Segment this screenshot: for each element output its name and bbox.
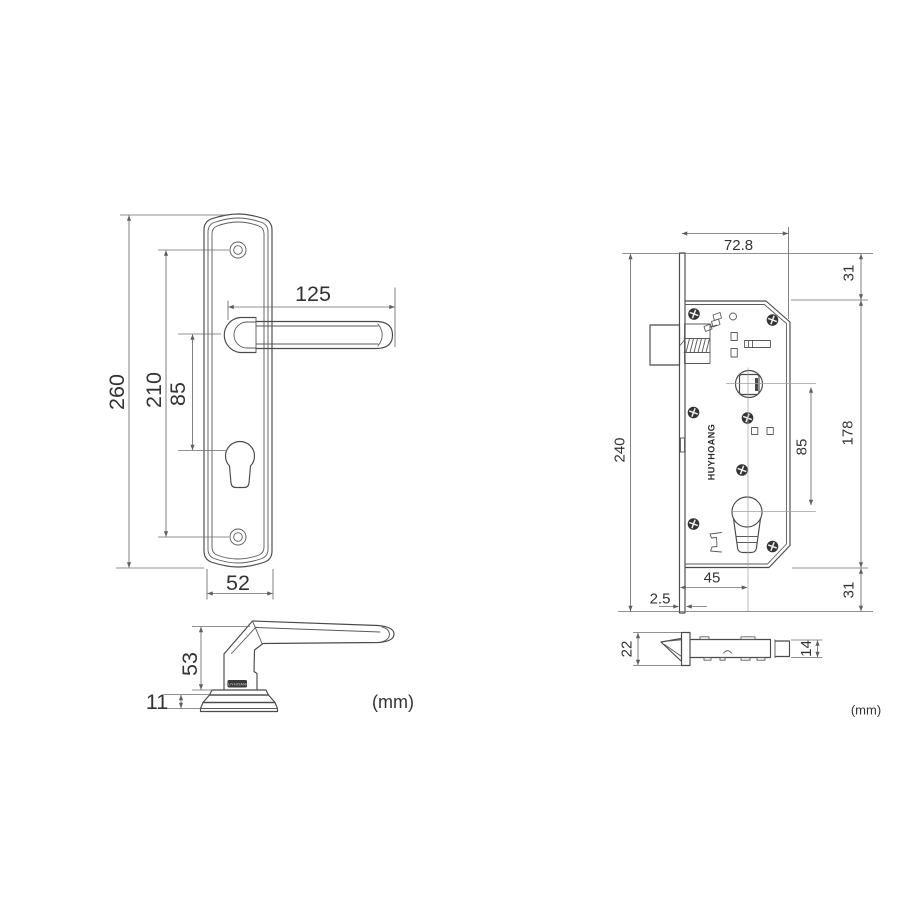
lock-front-view: HUYHOANG 72.8 31 178 85 240 45 2.5 31	[612, 227, 874, 613]
dim-label-base-thickness: 11	[146, 690, 168, 714]
lock-top-view: 22 14 (mm)	[619, 633, 882, 718]
deadbolt-bracket	[710, 533, 722, 553]
dim-label-plate-width: 52	[226, 571, 250, 595]
slide-bolt	[745, 341, 771, 348]
dim-label-bottom-margin: 31	[841, 582, 858, 599]
dim-label-overall-height: 260	[105, 374, 129, 410]
brand-badge-label: HUYHOANG	[225, 682, 250, 687]
dim-label-screw-spacing: 210	[142, 372, 166, 408]
dim-label-faceplate-height: 240	[612, 437, 629, 462]
lock-brand-label: HUYHOANG	[707, 424, 717, 481]
latch-spring	[686, 339, 710, 353]
bottom-screw-hole	[230, 529, 246, 545]
handle-front-view: 260 210 85 125 52	[105, 214, 395, 600]
drawing-canvas: 260 210 85 125 52 HUYHOANG 53 11 (mm)	[0, 0, 900, 900]
top-screw-hole	[230, 242, 246, 258]
dim-label-case-height: 178	[840, 420, 857, 445]
dim-label-handle-to-cylinder: 85	[166, 382, 190, 406]
faceplate-section	[682, 633, 691, 666]
dim-label-case-width: 72.8	[724, 237, 753, 254]
latch-bolt	[650, 324, 710, 365]
rosette-base	[201, 690, 278, 712]
dim-label-handle-length: 125	[295, 282, 331, 306]
dim-label-faceplate-width: 22	[619, 641, 636, 658]
unit-note-left: (mm)	[372, 692, 414, 712]
technical-drawing-page: 260 210 85 125 52 HUYHOANG 53 11 (mm)	[0, 0, 900, 900]
unit-note-right: (mm)	[851, 703, 881, 718]
dim-label-top-margin: 31	[841, 265, 858, 282]
dim-label-faceplate-thickness: 2.5	[650, 591, 671, 608]
dim-label-case-thickness: 14	[798, 640, 815, 657]
handle-plate-outline	[204, 214, 272, 567]
lock-cylinder-hole	[732, 497, 762, 553]
spindle-follower	[736, 371, 763, 398]
lock-case-top	[690, 637, 790, 660]
lever-front	[224, 318, 392, 353]
handle-side-view: HUYHOANG 53 11 (mm)	[146, 621, 414, 714]
dim-label-handle-height: 53	[178, 652, 202, 676]
latch-bolt-top	[661, 639, 682, 661]
lock-faceplate	[680, 253, 686, 613]
dim-label-follower-to-cylinder: 85	[794, 439, 811, 456]
cylinder-cutout	[226, 441, 255, 487]
dim-label-backset: 45	[704, 570, 721, 587]
